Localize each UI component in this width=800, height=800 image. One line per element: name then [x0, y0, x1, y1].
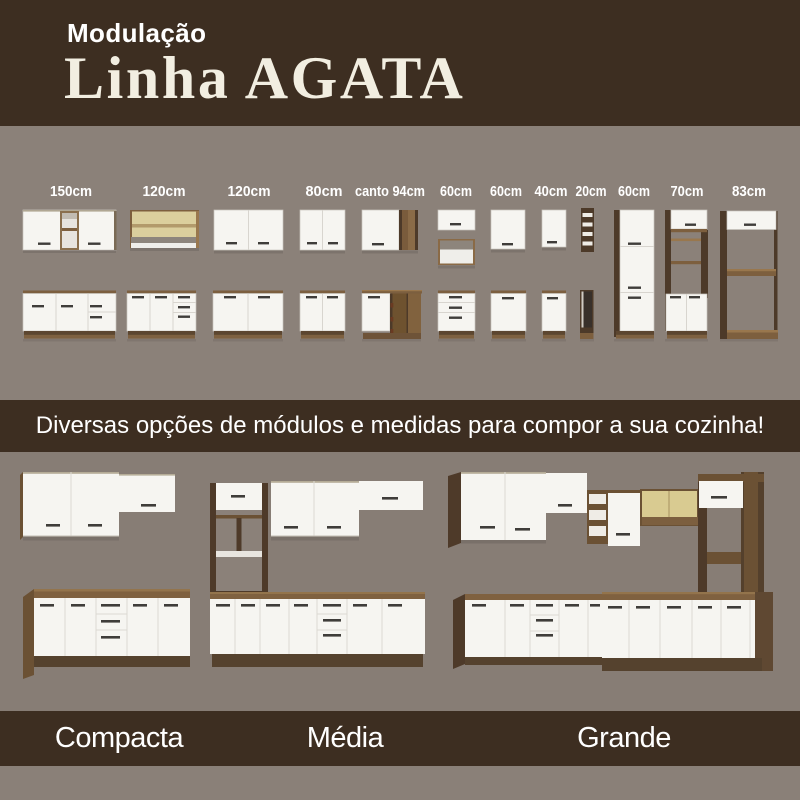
svg-text:70cm: 70cm — [671, 183, 704, 200]
svg-text:150cm: 150cm — [50, 183, 92, 200]
svg-text:80cm: 80cm — [306, 183, 343, 200]
svg-text:60cm: 60cm — [618, 183, 650, 200]
svg-text:20cm: 20cm — [576, 183, 607, 200]
svg-text:60cm: 60cm — [440, 183, 472, 200]
svg-text:40cm: 40cm — [535, 183, 568, 200]
svg-text:120cm: 120cm — [143, 183, 186, 200]
svg-text:83cm: 83cm — [732, 183, 766, 200]
svg-text:canto 94cm: canto 94cm — [355, 183, 425, 200]
svg-text:60cm: 60cm — [490, 183, 522, 200]
svg-text:120cm: 120cm — [228, 183, 271, 200]
